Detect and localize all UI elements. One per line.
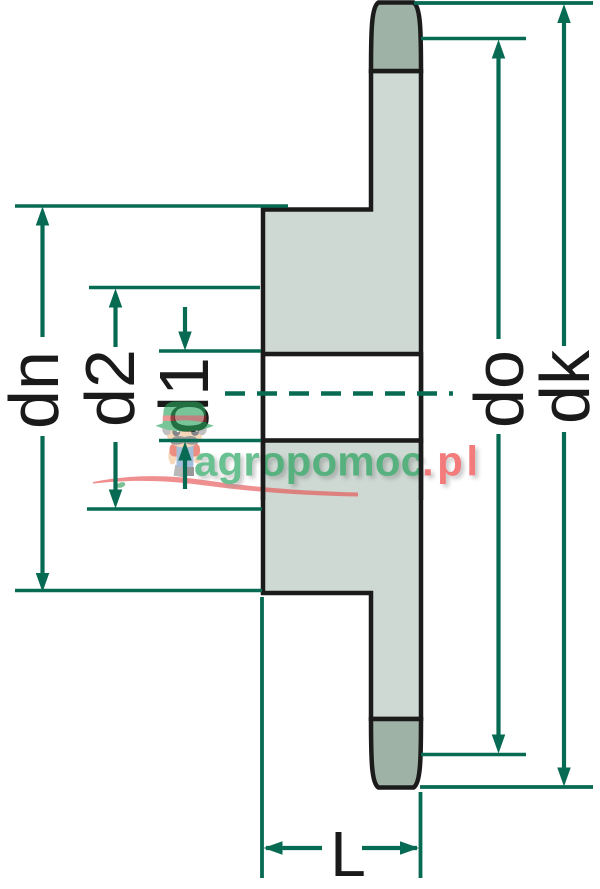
svg-text:L: L [330, 818, 366, 889]
svg-text:.pl: .pl [422, 438, 482, 485]
svg-text:dk: dk [526, 349, 600, 424]
svg-text:agropomoc: agropomoc [194, 438, 424, 485]
svg-text:dn: dn [0, 351, 73, 429]
svg-text:d2: d2 [71, 349, 149, 427]
